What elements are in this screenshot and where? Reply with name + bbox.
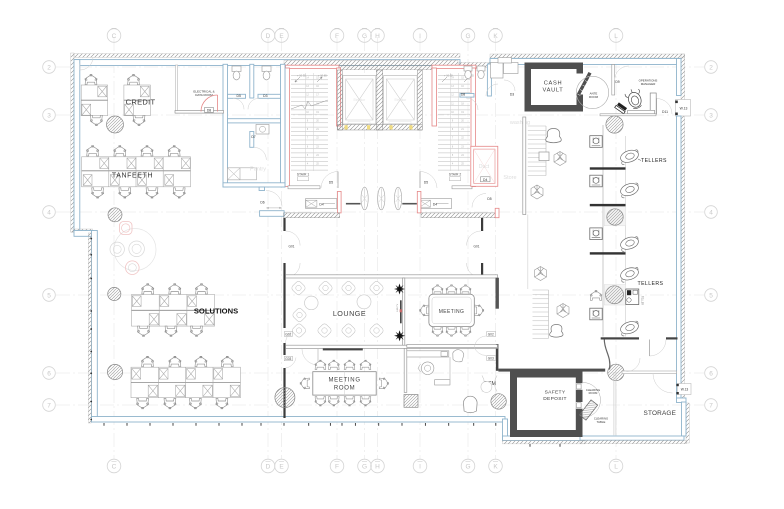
svg-text:D3: D3 xyxy=(510,93,514,97)
svg-text:D4: D4 xyxy=(319,202,323,206)
svg-text:D6: D6 xyxy=(260,201,264,205)
svg-text:F: F xyxy=(335,464,339,471)
svg-text:I: I xyxy=(419,33,421,40)
svg-text:L: L xyxy=(614,33,618,40)
svg-text:D8: D8 xyxy=(461,93,465,97)
svg-text:TANFEETH: TANFEETH xyxy=(112,173,153,180)
svg-text:D4: D4 xyxy=(433,202,437,206)
svg-text:Elevator: Elevator xyxy=(353,98,366,102)
svg-text:G: G xyxy=(362,33,367,40)
svg-text:ROOM: ROOM xyxy=(334,385,355,391)
svg-text:+ 10.35: + 10.35 xyxy=(297,74,306,78)
svg-text:W.13: W.13 xyxy=(680,107,688,111)
svg-text:2: 2 xyxy=(709,65,713,72)
svg-text:Elevator: Elevator xyxy=(395,98,408,102)
svg-text:MANAGER: MANAGER xyxy=(641,82,656,86)
svg-text:4: 4 xyxy=(709,210,713,217)
svg-text:DEPOSIT: DEPOSIT xyxy=(543,396,567,402)
svg-text:6: 6 xyxy=(709,371,713,378)
svg-text:7: 7 xyxy=(709,403,713,410)
svg-text:VAULT: VAULT xyxy=(543,87,564,93)
svg-text:D5: D5 xyxy=(487,197,491,201)
svg-text:C: C xyxy=(112,33,117,40)
svg-text:2: 2 xyxy=(47,65,51,72)
svg-text:E: E xyxy=(279,33,284,40)
svg-text:TELLER: TELLER xyxy=(641,296,644,305)
svg-text:ROOM: ROOM xyxy=(589,391,598,395)
svg-text:D3: D3 xyxy=(263,94,267,98)
svg-text:D5: D5 xyxy=(237,94,241,98)
svg-text:5: 5 xyxy=(47,293,51,300)
svg-text:G: G xyxy=(362,464,367,471)
svg-text:4: 4 xyxy=(47,210,51,217)
svg-text:5: 5 xyxy=(709,293,713,300)
svg-text:W.13: W.13 xyxy=(681,388,689,392)
svg-text:D: D xyxy=(266,464,271,471)
svg-text:L: L xyxy=(614,464,618,471)
svg-text:3: 3 xyxy=(47,113,51,120)
svg-text:G: G xyxy=(465,464,470,471)
svg-text:3: 3 xyxy=(709,113,713,120)
svg-text:7: 7 xyxy=(47,403,51,410)
svg-text:D4: D4 xyxy=(483,178,487,182)
svg-text:G02: G02 xyxy=(488,332,494,336)
svg-text:SAFETY: SAFETY xyxy=(545,390,566,396)
svg-text:K: K xyxy=(493,33,498,40)
svg-text:D: D xyxy=(266,33,271,40)
svg-text:6: 6 xyxy=(47,371,51,378)
svg-text:+ 10.65: + 10.65 xyxy=(318,74,327,78)
svg-text:MEETING: MEETING xyxy=(328,378,360,384)
svg-text:H: H xyxy=(375,33,380,40)
svg-text:STORAGE: STORAGE xyxy=(644,410,677,417)
svg-text:Store: Store xyxy=(503,175,516,181)
svg-text:G03: G03 xyxy=(488,357,494,361)
svg-text:washing: washing xyxy=(509,120,530,126)
svg-text:CREDIT: CREDIT xyxy=(126,98,156,107)
svg-text:SOLUTIONS: SOLUTIONS xyxy=(194,307,238,316)
svg-text:G01: G01 xyxy=(474,245,480,249)
svg-text:E: E xyxy=(279,464,284,471)
svg-text:C: C xyxy=(112,464,117,471)
svg-text:STAIR 2: STAIR 2 xyxy=(449,173,462,177)
svg-text:CASH: CASH xyxy=(544,81,563,87)
svg-text:D5: D5 xyxy=(424,181,428,185)
svg-text:I: I xyxy=(419,464,421,471)
svg-text:+ 10.35: + 10.35 xyxy=(444,74,453,78)
svg-text:D9: D9 xyxy=(615,80,619,84)
svg-text:Pantry: Pantry xyxy=(250,167,266,173)
svg-text:D5: D5 xyxy=(329,181,333,185)
svg-text:STAIR 1: STAIR 1 xyxy=(297,173,310,177)
svg-text:LOUNGE: LOUNGE xyxy=(333,309,366,318)
svg-text:G: G xyxy=(465,33,470,40)
svg-text:TABLE: TABLE xyxy=(597,420,606,424)
svg-text:ROOM: ROOM xyxy=(589,95,599,99)
svg-text:D7: D7 xyxy=(251,135,255,139)
svg-text:MEETING: MEETING xyxy=(439,309,465,315)
svg-text:F: F xyxy=(335,33,339,40)
svg-text:G03: G03 xyxy=(285,357,291,361)
svg-text:G01: G01 xyxy=(289,245,295,249)
svg-text:H: H xyxy=(375,464,380,471)
svg-text:Duct: Duct xyxy=(479,164,490,170)
svg-text:D11: D11 xyxy=(662,110,668,114)
svg-text:TELLERS: TELLERS xyxy=(638,281,664,287)
svg-text:D8: D8 xyxy=(207,108,211,112)
svg-text:LED TV: LED TV xyxy=(397,303,399,311)
svg-text:TELLERS: TELLERS xyxy=(641,158,667,164)
svg-text:K: K xyxy=(493,464,498,471)
